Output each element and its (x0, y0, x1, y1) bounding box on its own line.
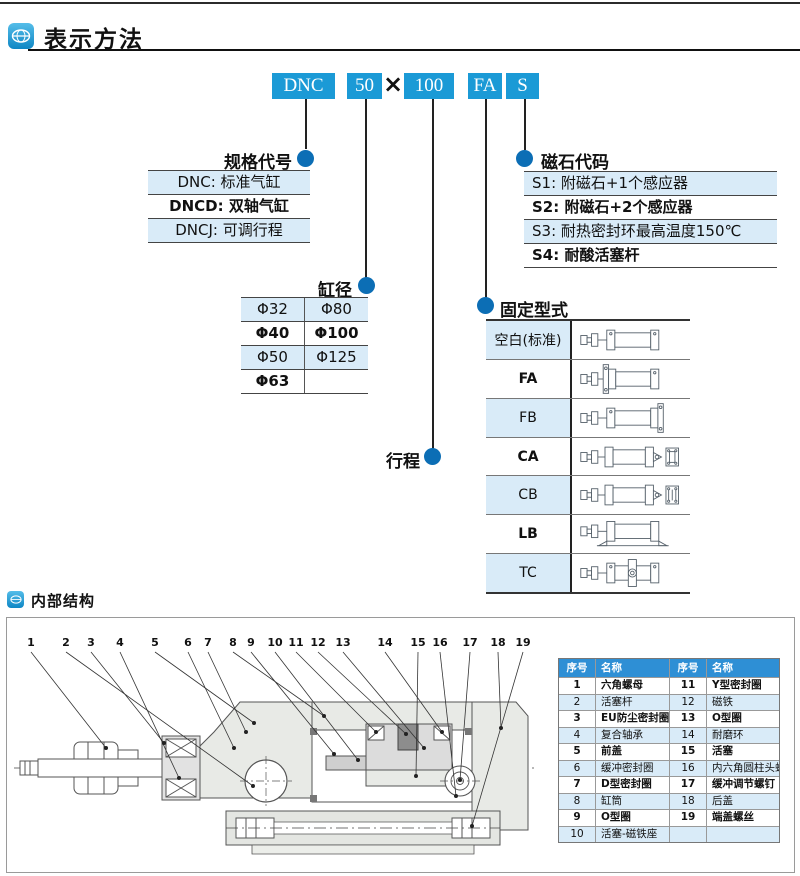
cell: O型圈 (595, 810, 669, 826)
leader-line-stroke (432, 99, 434, 449)
table-row: 4复合轴承14耐磨环 (559, 727, 779, 744)
magnet-row: S2: 附磁石+2个感应器 (524, 196, 777, 220)
mounting-type-label: FB (486, 399, 572, 437)
bearing-block (162, 736, 200, 800)
table-row: 8缸筒18后盖 (559, 793, 779, 810)
svg-text:6: 6 (184, 636, 192, 649)
page-top-rule (0, 2, 800, 4)
cell: 活塞杆 (595, 695, 669, 711)
logo-glyph-icon (11, 29, 31, 43)
bore-cell: Φ125 (304, 346, 368, 369)
mounting-type-label: 空白(标准) (486, 321, 572, 359)
table-row: 3EU防尘密封圈13O型圈 (559, 710, 779, 727)
parts-table: 序号 名称 序号 名称 1六角螺母11Y型密封圈 2活塞杆12磁铁 3EU防尘密… (558, 658, 780, 843)
mounting-type-label: FA (486, 360, 572, 398)
cell: 缓冲调节螺钉 (706, 777, 779, 793)
cell: 13 (669, 711, 706, 727)
svg-text:3: 3 (87, 636, 95, 649)
cell: 缸筒 (595, 794, 669, 810)
catalog-page: 表示方法 DNC 50 × 100 FA S 规格代号 DNC: 标准气缸 DN… (0, 0, 800, 876)
table-row: 5前盖15活塞 (559, 743, 779, 760)
stroke-title: 行程 (330, 447, 420, 472)
mounting-row: 空白(标准) (486, 321, 690, 360)
cell: Y型密封圈 (706, 678, 779, 694)
svg-text:18: 18 (490, 636, 505, 649)
cushion-spear (326, 756, 368, 770)
cell: 缓冲密封圈 (595, 761, 669, 777)
cell: 内六角圆柱头螺钉 (706, 761, 779, 777)
cell: O型圈 (706, 711, 779, 727)
bore-cell: Φ32 (241, 298, 304, 321)
section-icon (7, 591, 24, 608)
mounting-type-label: CB (486, 476, 572, 514)
svg-text:9: 9 (247, 636, 255, 649)
parts-table-header: 序号 名称 序号 名称 (559, 659, 779, 677)
svg-text:10: 10 (267, 636, 283, 649)
cell: 18 (669, 794, 706, 810)
table-row: 2活塞杆12磁铁 (559, 694, 779, 711)
mounting-type-label: LB (486, 515, 572, 553)
cell: 12 (669, 695, 706, 711)
mounting-row: FB (486, 399, 690, 438)
cell: 复合轴承 (595, 728, 669, 744)
spec-row: DNCD: 双轴气缸 (148, 195, 310, 219)
svg-text:11: 11 (288, 636, 303, 649)
brand-logo-icon (8, 23, 34, 49)
mount-dot (477, 297, 494, 314)
table-row: 10活塞-磁铁座 (559, 826, 779, 843)
bore-row: Φ50Φ125 (241, 346, 368, 370)
mount-diagram-cb (572, 476, 690, 514)
cell (706, 827, 779, 843)
svg-text:12: 12 (310, 636, 325, 649)
mount-diagram-ca (572, 438, 690, 476)
col-header: 序号 (669, 659, 706, 677)
mount-diagram-tc (572, 554, 690, 592)
multiply-sign: × (382, 70, 404, 98)
cell: 磁铁 (706, 695, 779, 711)
svg-text:15: 15 (410, 636, 425, 649)
mounting-row: CB (486, 476, 690, 515)
svg-text:4: 4 (116, 636, 124, 649)
leader-line-bore (365, 99, 367, 279)
svg-text:16: 16 (432, 636, 448, 649)
cell: 耐磨环 (706, 728, 779, 744)
table-row: 1六角螺母11Y型密封圈 (559, 677, 779, 694)
cell: 15 (669, 744, 706, 760)
cell: 3 (559, 711, 595, 727)
header-underline (28, 49, 800, 51)
magnet-dot (516, 150, 533, 167)
svg-text:8: 8 (229, 636, 237, 649)
cell: 7 (559, 777, 595, 793)
svg-text:17: 17 (462, 636, 477, 649)
cell: 2 (559, 695, 595, 711)
spec-dot (297, 150, 314, 167)
cell: 14 (669, 728, 706, 744)
bore-row: Φ32Φ80 (241, 298, 368, 322)
col-header: 名称 (595, 659, 669, 677)
bore-table: Φ32Φ80 Φ40Φ100 Φ50Φ125 Φ63 (241, 297, 368, 394)
mount-diagram-basic (572, 321, 690, 359)
mount-diagram-fb (572, 399, 690, 437)
leader-line-magnet (524, 99, 526, 150)
mounting-title: 固定型式 (500, 296, 568, 321)
mounting-type-label: CA (486, 438, 572, 476)
stroke-dot (424, 448, 441, 465)
cell: 10 (559, 827, 595, 843)
model-code-mount: FA (468, 73, 502, 99)
svg-text:2: 2 (62, 636, 70, 649)
cell: 活塞 (706, 744, 779, 760)
svg-text:13: 13 (335, 636, 350, 649)
col-header: 序号 (559, 659, 595, 677)
bore-cell: Φ100 (304, 322, 368, 345)
model-code-bore: 50 (347, 73, 382, 99)
magnet-row: S3: 耐热密封环最高温度150℃ (524, 220, 777, 244)
bore-cell: Φ50 (241, 346, 304, 369)
cell: 19 (669, 810, 706, 826)
svg-text:1: 1 (27, 636, 35, 649)
magnet-code-title: 磁石代码 (541, 148, 609, 173)
seal-mark (465, 728, 472, 735)
svg-text:14: 14 (377, 636, 393, 649)
cell: 端盖螺丝 (706, 810, 779, 826)
leader-line-spec (305, 99, 307, 149)
magnet-row: S1: 附磁石+1个感应器 (524, 172, 777, 196)
mounting-row: CA (486, 438, 690, 477)
col-header: 名称 (706, 659, 779, 677)
mounting-row: FA (486, 360, 690, 399)
mounting-row: LB (486, 515, 690, 554)
cell (669, 827, 706, 843)
cell: 6 (559, 761, 595, 777)
bore-cell (304, 370, 368, 393)
internal-structure-title: 内部结构 (31, 590, 95, 611)
seal-mark (310, 795, 317, 802)
bore-cell: Φ40 (241, 322, 304, 345)
cell: 4 (559, 728, 595, 744)
model-code-series: DNC (272, 73, 335, 99)
cell: 11 (669, 678, 706, 694)
svg-text:7: 7 (204, 636, 212, 649)
cell: 16 (669, 761, 706, 777)
mounting-type-label: TC (486, 554, 572, 592)
table-row: 9O型圈19端盖螺丝 (559, 809, 779, 826)
spec-row: DNC: 标准气缸 (148, 171, 310, 195)
mount-diagram-fa (572, 360, 690, 398)
model-code-magnet: S (506, 73, 539, 99)
bore-dot (358, 277, 375, 294)
leader-line-mount (485, 99, 487, 298)
cylinder-section-drawing: 12 34 56 78 910 1112 1314 1516 1718 19 (14, 628, 546, 866)
cell: EU防尘密封圈 (595, 711, 669, 727)
callout-numbers: 12 34 56 78 910 1112 1314 1516 1718 19 (27, 636, 530, 649)
rod-thread (20, 761, 38, 775)
model-code-stroke: 100 (404, 73, 454, 99)
cell: 后盖 (706, 794, 779, 810)
cell: 六角螺母 (595, 678, 669, 694)
bore-cell: Φ63 (241, 370, 304, 393)
table-row: 6缓冲密封圈16内六角圆柱头螺钉 (559, 760, 779, 777)
cell: 17 (669, 777, 706, 793)
spec-row: DNCJ: 可调行程 (148, 219, 310, 243)
logo-glyph-icon (10, 595, 22, 604)
spec-code-table: DNC: 标准气缸 DNCD: 双轴气缸 DNCJ: 可调行程 (148, 170, 310, 243)
mounting-row: TC (486, 554, 690, 592)
cell: D型密封圈 (595, 777, 669, 793)
tie-rod-assembly (226, 811, 500, 854)
bore-row: Φ63 (241, 370, 368, 394)
piston-assembly (366, 724, 452, 786)
magnet-row: S4: 耐酸活塞杆 (524, 244, 777, 268)
svg-text:5: 5 (151, 636, 159, 649)
table-row: 7D型密封圈17缓冲调节螺钉 (559, 776, 779, 793)
svg-text:19: 19 (515, 636, 530, 649)
cell: 5 (559, 744, 595, 760)
bore-row: Φ40Φ100 (241, 322, 368, 346)
bore-cell: Φ80 (304, 298, 368, 321)
mount-diagram-lb (572, 515, 690, 553)
cell: 前盖 (595, 744, 669, 760)
magnet-code-table: S1: 附磁石+1个感应器 S2: 附磁石+2个感应器 S3: 耐热密封环最高温… (524, 171, 777, 268)
cell: 9 (559, 810, 595, 826)
cell: 1 (559, 678, 595, 694)
mounting-table: 空白(标准) FA FB (486, 319, 690, 594)
cell: 8 (559, 794, 595, 810)
cell: 活塞-磁铁座 (595, 827, 669, 843)
